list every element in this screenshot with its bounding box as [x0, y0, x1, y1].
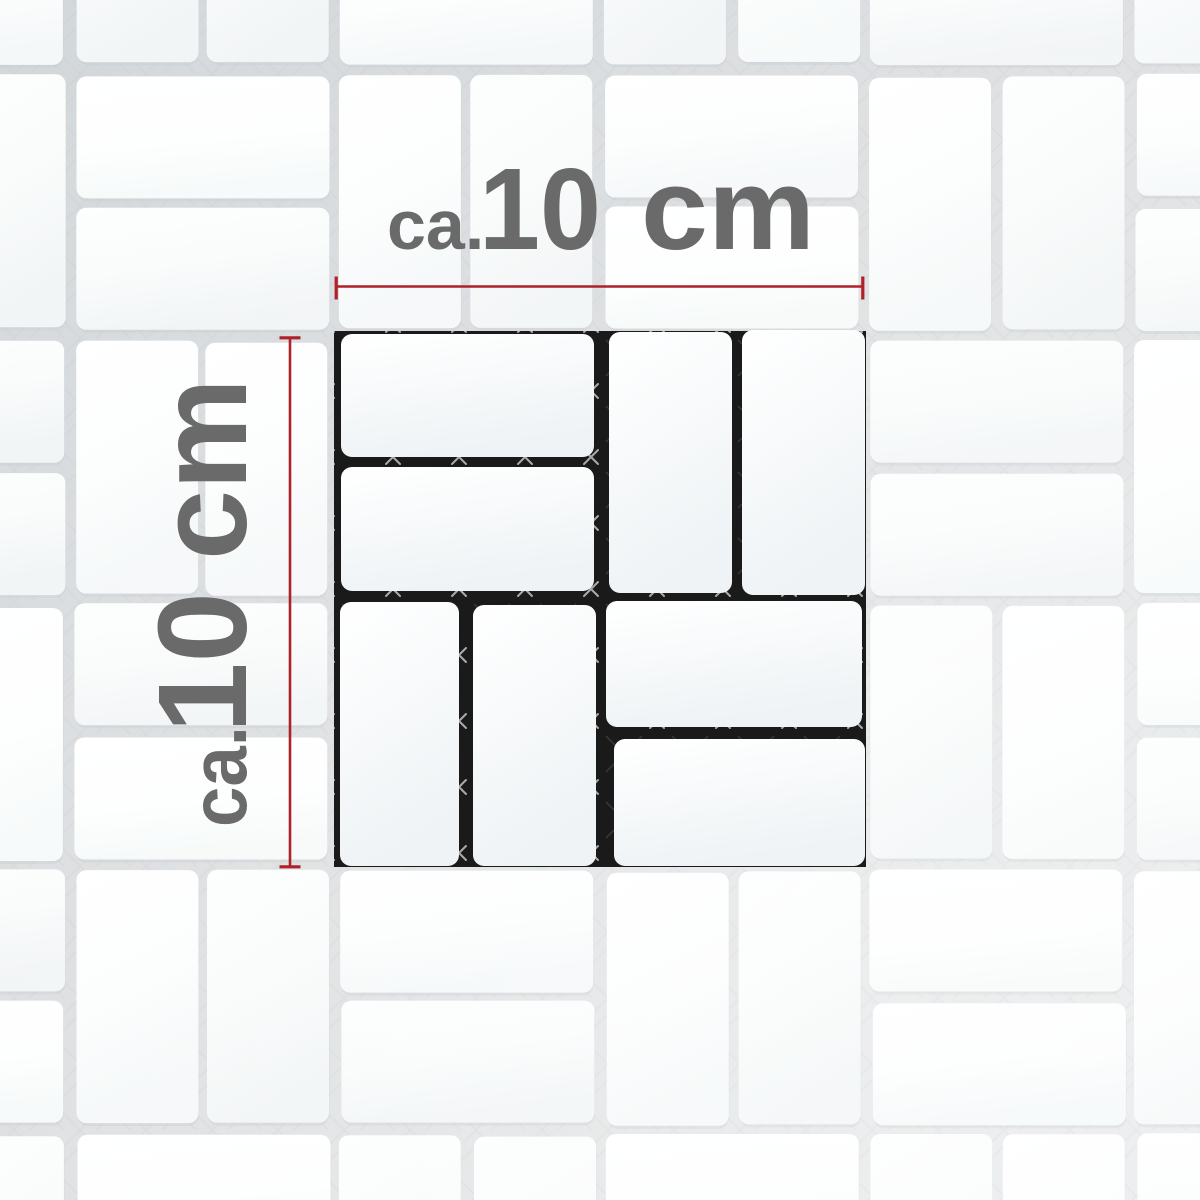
svg-text:cm: cm: [641, 144, 815, 274]
svg-text:10: 10: [132, 592, 273, 733]
svg-text:10: 10: [479, 144, 601, 274]
svg-text:ca.: ca.: [174, 726, 263, 827]
svg-text:cm: cm: [132, 378, 273, 560]
svg-text:ca.: ca.: [387, 186, 484, 264]
